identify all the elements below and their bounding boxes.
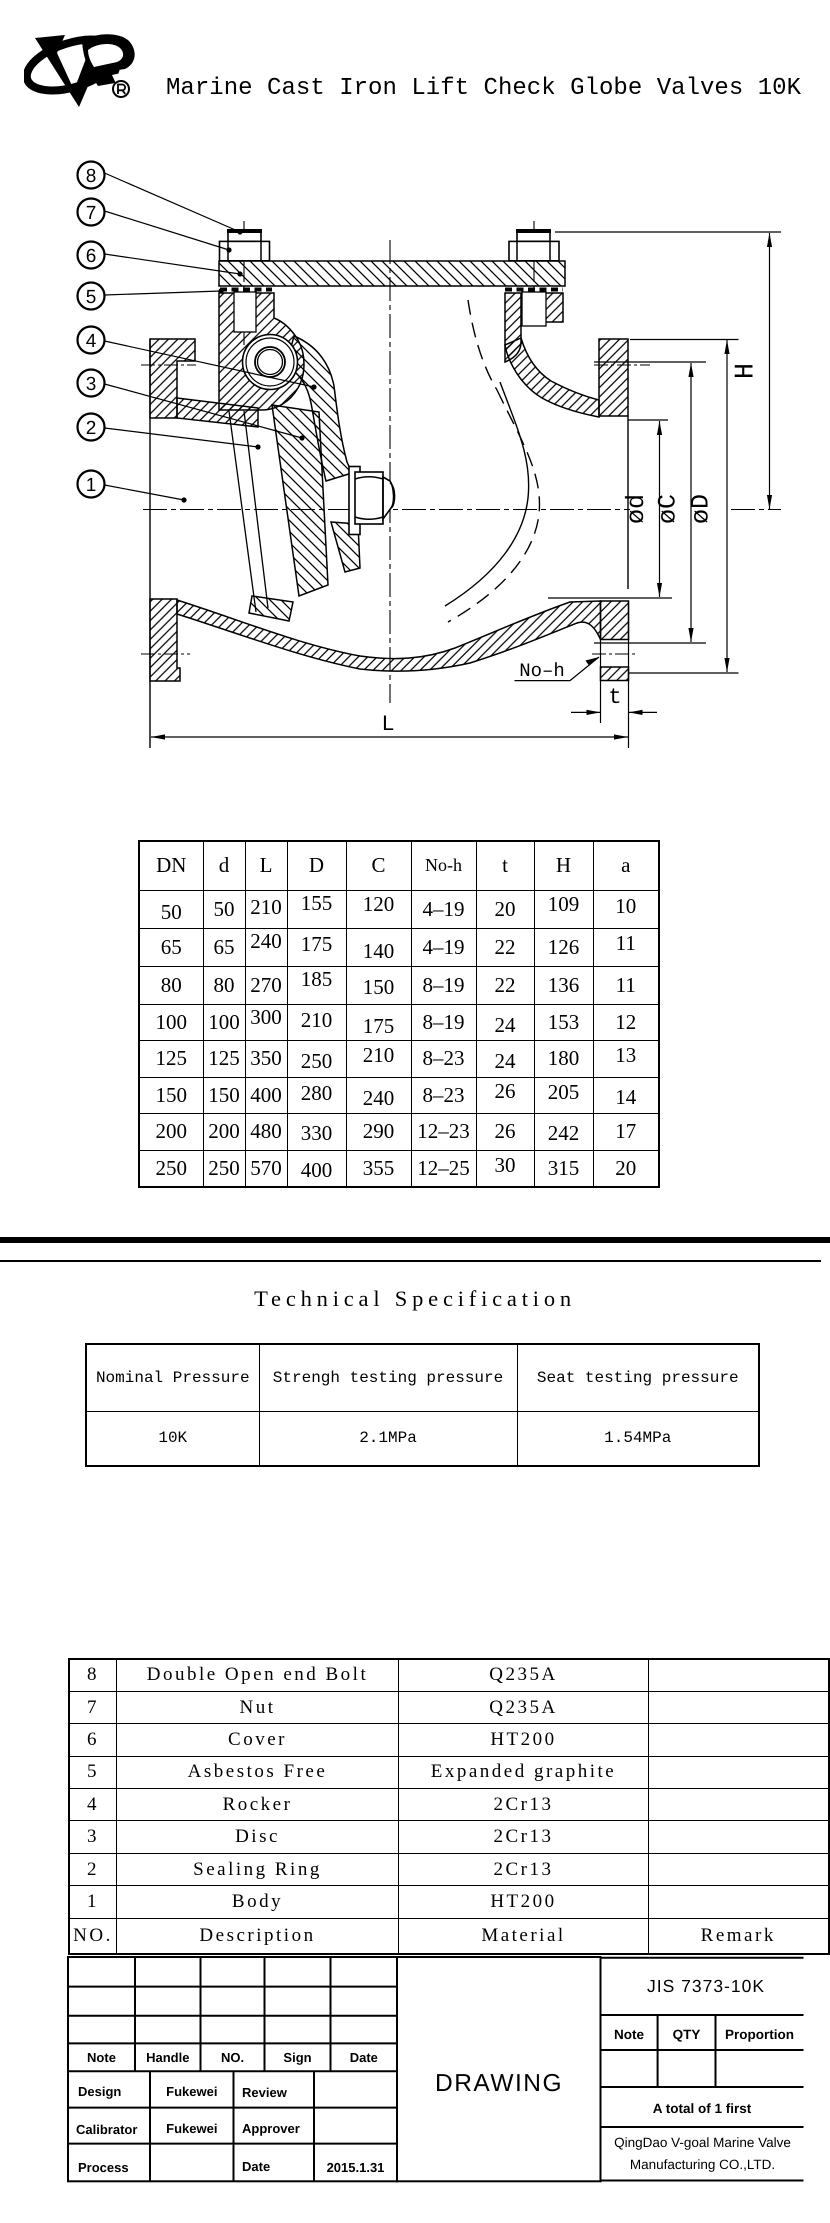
svg-text:2015.1.31: 2015.1.31 xyxy=(327,2160,385,2175)
svg-text:Calibrator: Calibrator xyxy=(76,2122,137,2137)
svg-text:L: L xyxy=(381,712,394,737)
svg-text:Date: Date xyxy=(242,2159,270,2174)
svg-text:t: t xyxy=(608,685,621,710)
svg-text:1: 1 xyxy=(86,475,97,496)
svg-text:Design: Design xyxy=(78,2084,121,2099)
svg-text:NO.: NO. xyxy=(221,2050,244,2065)
svg-text:Proportion: Proportion xyxy=(725,2027,794,2042)
svg-text:2: 2 xyxy=(86,418,97,439)
svg-text:6: 6 xyxy=(86,246,97,267)
svg-text:Approver: Approver xyxy=(242,2121,300,2136)
svg-text:QingDao V-goal Marine Valve: QingDao V-goal Marine Valve xyxy=(614,2135,791,2150)
svg-text:H: H xyxy=(732,363,762,379)
svg-text:5: 5 xyxy=(86,287,97,308)
svg-text:3: 3 xyxy=(86,374,97,395)
svg-text:Date: Date xyxy=(350,2050,378,2065)
svg-text:Manufacturing CO.,LTD.: Manufacturing CO.,LTD. xyxy=(630,2157,775,2172)
svg-text:Review: Review xyxy=(242,2085,288,2100)
svg-text:8: 8 xyxy=(86,166,97,187)
svg-text:Process: Process xyxy=(78,2160,129,2175)
svg-text:DRAWING: DRAWING xyxy=(435,2070,563,2097)
svg-text:Note: Note xyxy=(87,2050,116,2065)
svg-text:øD: øD xyxy=(687,494,716,524)
svg-text:Fukewei: Fukewei xyxy=(166,2121,217,2136)
svg-text:Fukewei: Fukewei xyxy=(166,2084,217,2099)
svg-text:A total of 1 first: A total of 1 first xyxy=(653,2101,752,2116)
svg-text:JIS 7373-10K: JIS 7373-10K xyxy=(647,1976,765,1996)
svg-text:4: 4 xyxy=(86,331,97,352)
svg-text:øC: øC xyxy=(654,494,683,524)
svg-text:Handle: Handle xyxy=(146,2050,189,2065)
svg-text:No–h: No–h xyxy=(519,660,565,682)
svg-text:Note: Note xyxy=(614,2027,644,2042)
svg-text:ød: ød xyxy=(622,494,651,524)
svg-text:Sign: Sign xyxy=(283,2050,311,2065)
svg-text:QTY: QTY xyxy=(673,2027,701,2042)
svg-text:7: 7 xyxy=(86,203,97,224)
